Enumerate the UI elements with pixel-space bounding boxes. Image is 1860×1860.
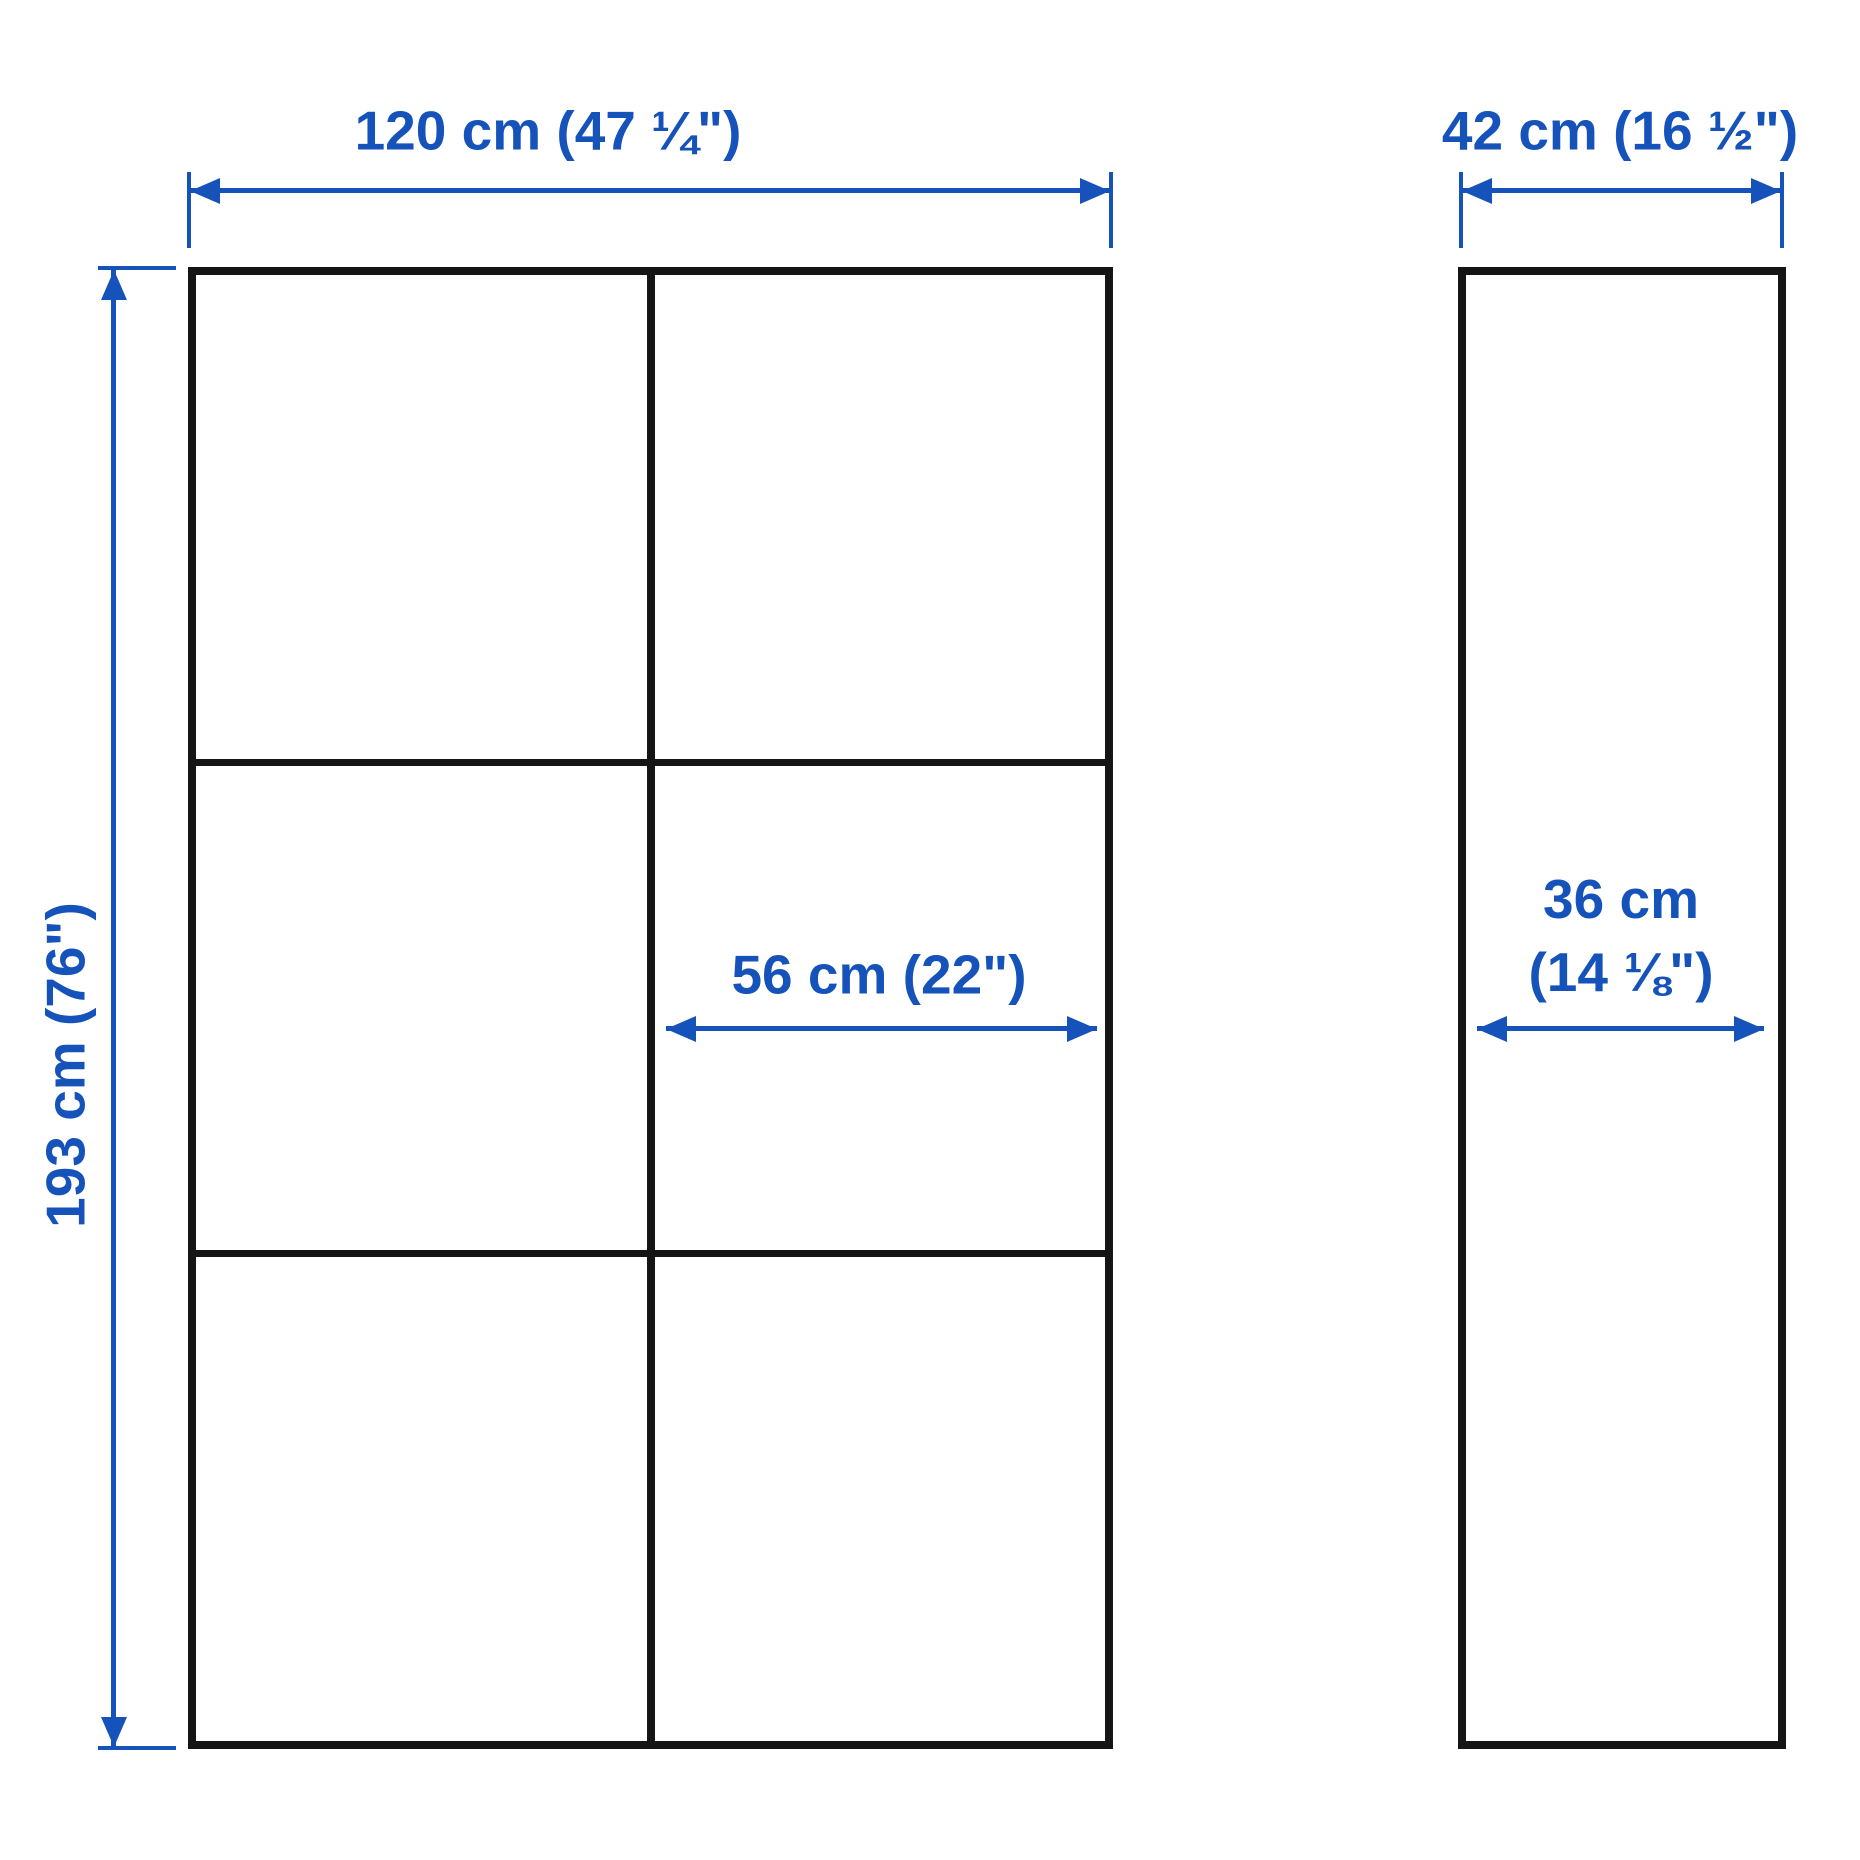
front-width-right-tick [1109, 172, 1113, 248]
side-width-label: 42 cm (16 ½") [1442, 99, 1798, 164]
front-height-bottom-tick [98, 1746, 176, 1750]
dimension-diagram: 120 cm (47 ¼") 42 cm (16 ½") 193 cm (76"… [0, 0, 1860, 1860]
side-width-left-tick [1459, 172, 1463, 248]
front-width-dimension-arrow-icon [190, 188, 1110, 193]
front-view-shelf-divider-top [196, 759, 1105, 766]
side-width-right-tick [1780, 172, 1784, 248]
front-width-left-tick [187, 172, 191, 248]
side-width-dimension-arrow-icon [1462, 188, 1781, 193]
front-view-outline [188, 267, 1113, 1749]
compartment-width-dimension-arrow-icon [666, 1026, 1097, 1031]
front-width-label: 120 cm (47 ¼") [355, 99, 742, 164]
front-height-top-tick [98, 266, 176, 270]
front-view-center-divider [647, 275, 655, 1741]
inner-depth-label-line2: (14 ⅛") [1528, 941, 1713, 1003]
compartment-width-label: 56 cm (22") [731, 943, 1026, 1008]
front-height-label: 193 cm (76") [34, 902, 99, 1228]
inner-depth-dimension-arrow-icon [1477, 1026, 1764, 1031]
inner-depth-label: 36 cm(14 ⅛") [1528, 863, 1713, 1009]
front-height-dimension-arrow-icon [111, 270, 116, 1747]
inner-depth-label-line1: 36 cm [1543, 868, 1699, 930]
front-view-shelf-divider-bottom [196, 1250, 1105, 1257]
